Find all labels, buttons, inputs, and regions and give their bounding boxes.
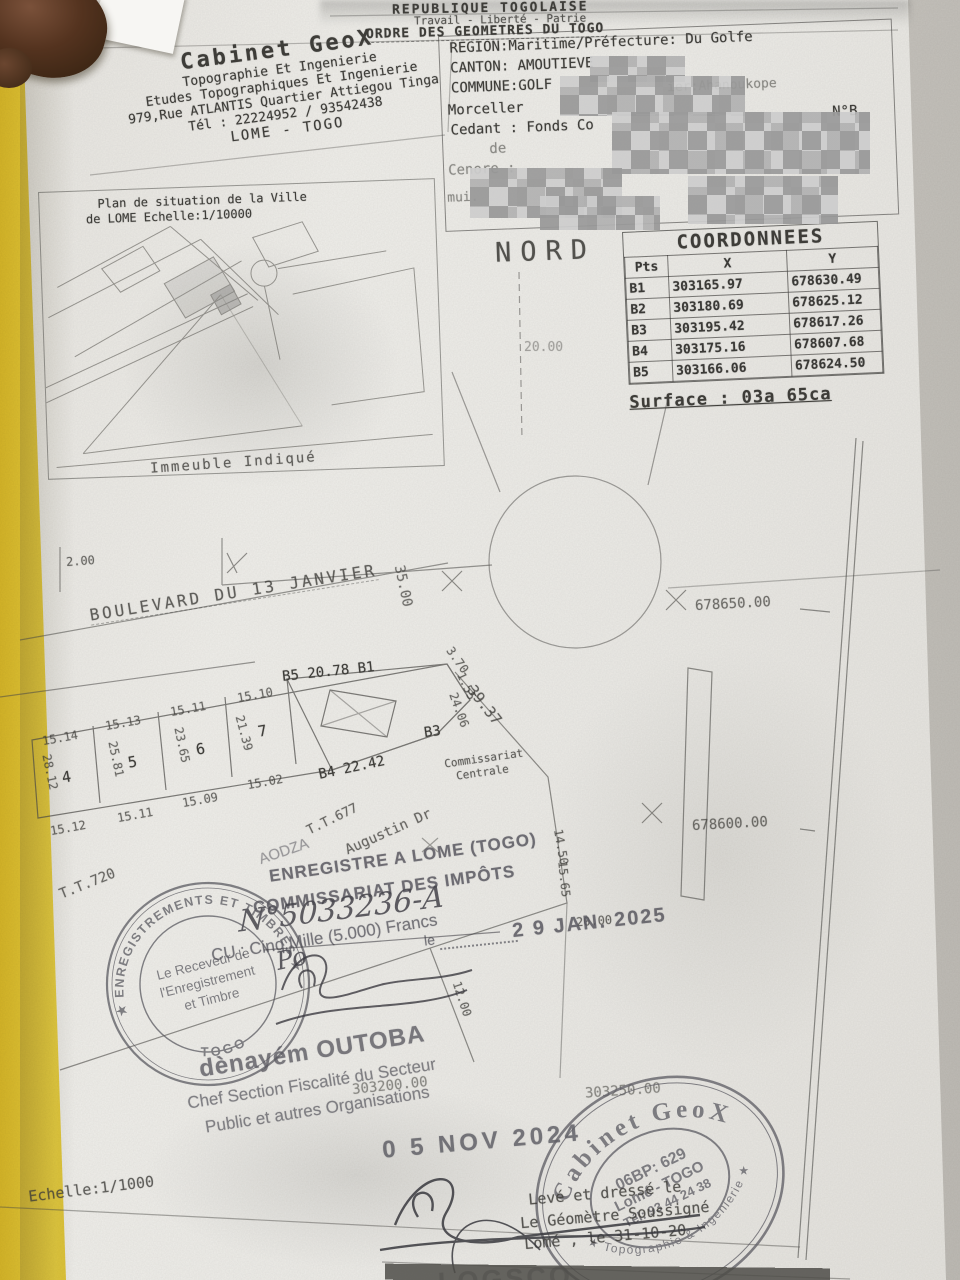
point-b3: B3 (423, 723, 442, 741)
scale-label: Echelle:1/1000 (27, 1172, 155, 1205)
top-dim-3: 15.11 (169, 699, 207, 719)
cedant-line: Cedant : Fonds Co (450, 117, 594, 138)
coordinates-block: COORDONNEES Pts X Y B1 303165.97 678630.… (622, 221, 886, 413)
edge-b4: B4 22.42 (317, 753, 386, 783)
x-b5: 303166.06 (672, 355, 792, 381)
side-dim-2: 25.81 (105, 740, 126, 778)
lot-4: 4 (61, 767, 73, 786)
grid-y-top: 678650.00 (695, 594, 772, 614)
edge-b5-b1: B5 20.78 B1 (281, 659, 375, 685)
north-dim: 20.00 (524, 340, 563, 355)
bottom-dim-2: 15.11 (116, 805, 154, 825)
redaction-mosaic (540, 196, 660, 230)
lot-7: 7 (257, 721, 269, 740)
col-pts: Pts (625, 256, 669, 279)
de-fragment: de (489, 140, 506, 157)
top-dim-2: 15.13 (104, 713, 142, 733)
canton-line: CANTON: AMOUTIEVE (450, 55, 594, 76)
tt-677: T.T.677 (304, 801, 360, 839)
top-dim-1: 15.14 (41, 728, 79, 748)
pt-b4: B4 (628, 339, 672, 362)
geometre-signature (360, 1155, 790, 1275)
commune-line: COMMUNE:GOLF (451, 77, 553, 97)
side-dim-4: 21.39 (233, 714, 256, 753)
pt-b3: B3 (627, 318, 671, 341)
redaction-mosaic (560, 76, 745, 116)
region-line: REGION:Maritime/Préfecture: Du Golfe (449, 29, 753, 57)
photo-of-survey-plan: REPUBLIQUE TOGOLAISE Travail - Liberté -… (0, 0, 960, 1280)
side-dim-1: 28.12 (39, 753, 60, 791)
y-b5: 678624.50 (791, 351, 883, 376)
city-map-sketch (39, 179, 444, 479)
pt-b5: B5 (629, 360, 673, 383)
side-dim-3: 23.65 (171, 726, 192, 764)
pt-b1: B1 (626, 277, 670, 300)
bottom-dim-4: 15.02 (246, 772, 284, 792)
lot-5: 5 (127, 752, 139, 771)
boulevard-label: BOULEVARD DU 13 JANVIER (88, 560, 378, 625)
top-dim-4: 15.10 (236, 685, 274, 705)
redaction-mosaic (688, 176, 838, 224)
north-label: NORD (494, 234, 596, 269)
grid-y-bottom: 678600.00 (692, 814, 769, 834)
bottom-dim-1: 15.12 (49, 818, 87, 838)
redaction-mosaic (612, 112, 870, 174)
pt-b2: B2 (626, 297, 670, 320)
surface-label: Surface : 03a 65ca (629, 382, 886, 413)
lot-6: 6 (195, 739, 207, 758)
registration-date: 2 9 JAN. 2025 (511, 904, 668, 943)
signature (262, 928, 522, 1038)
situation-map: Plan de situation de la Ville de LOME Ec… (38, 178, 445, 480)
morceller-line: Morceller (448, 100, 524, 119)
coordinates-table: Pts X Y B1 303165.97 678630.49 B2 303180… (624, 246, 883, 384)
dim-35-00: 35.00 (391, 564, 415, 609)
bottom-dim-3: 15.09 (181, 790, 219, 810)
dim-2-00: 2.00 (66, 553, 96, 569)
dim-15-65: 15.65 (555, 860, 573, 897)
